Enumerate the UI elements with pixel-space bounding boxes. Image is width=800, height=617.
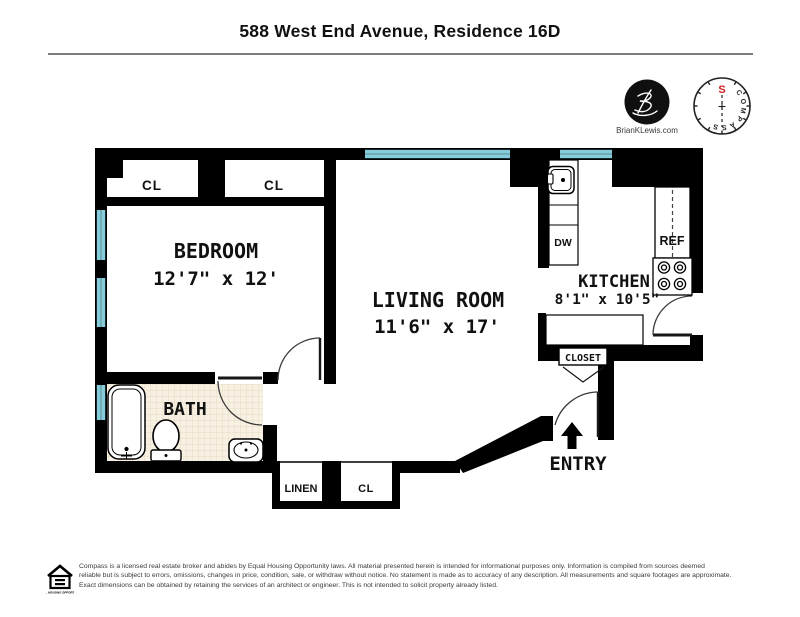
floorplan-sheet: 588 West End Avenue, Residence 16D Brian… xyxy=(0,0,800,617)
wall-cl-bottom xyxy=(333,501,400,509)
wall-corner-step xyxy=(95,160,123,178)
wall-left-2 xyxy=(95,260,107,278)
equal-housing-label: EQUAL HOUSING OPPORTUNITY xyxy=(46,591,74,595)
wall-diagonal-entry xyxy=(455,416,553,473)
disclaimer-line-2: reliable but is subject to errors, omiss… xyxy=(79,571,758,580)
bathtub-icon xyxy=(108,385,145,459)
window-kitchen xyxy=(560,148,612,160)
wall-peninsula-stub xyxy=(538,313,546,347)
wall-bottom-bath xyxy=(95,461,272,473)
kitchen-fixtures: DW REF xyxy=(546,160,692,345)
bedroom-dims: 12'7" x 12' xyxy=(153,268,279,290)
foyer-closet: CLOSET xyxy=(559,348,607,365)
kitchen-peninsula-counter xyxy=(546,315,643,345)
dishwasher-label: DW xyxy=(554,237,572,249)
wall-top-right-block xyxy=(612,148,703,187)
living-room-dims: 11'6" x 17' xyxy=(374,316,500,338)
logo-url-text: BrianKLewis.com xyxy=(616,126,678,135)
window-bedroom-2 xyxy=(95,278,107,327)
wall-closet-pier xyxy=(198,160,225,206)
disclaimer-line-1: Compass is a licensed real estate broker… xyxy=(79,562,758,571)
brian-k-lewis-logo: BrianKLewis.com xyxy=(616,80,678,136)
stove-icon xyxy=(653,258,692,295)
entry-arrow-icon xyxy=(561,422,583,449)
window-bedroom-1 xyxy=(95,210,107,260)
wall-linen-bottom xyxy=(272,501,330,509)
wall-bedroom-divider xyxy=(324,148,336,384)
compass-rose-icon: S C O M P A S S xyxy=(694,78,750,134)
bedroom-door xyxy=(278,338,320,380)
living-room-label: LIVING ROOM xyxy=(372,288,504,312)
linen-closet-label: LINEN xyxy=(285,483,318,495)
wall-kitchen-left xyxy=(538,148,549,268)
foyer-closet-label: CLOSET xyxy=(565,353,601,364)
kitchen-sink-icon xyxy=(548,167,575,194)
wall-door-pier xyxy=(263,372,278,384)
window-living-room xyxy=(365,148,510,160)
entry-label: ENTRY xyxy=(549,453,607,475)
wall-foyer-right xyxy=(598,361,614,440)
closet-top-right-label: CL xyxy=(264,178,284,193)
wall-bottom-living xyxy=(400,461,460,473)
foyer-closet-bifold-door xyxy=(563,367,604,382)
toilet-icon xyxy=(151,420,181,461)
disclaimer-line-3: Exact dimensions can be obtained by reta… xyxy=(79,581,758,590)
closet-bottom-label: CL xyxy=(358,483,374,495)
wall-bath-north xyxy=(95,372,215,384)
kitchen-dims: 8'1" x 10'5" xyxy=(555,292,660,308)
compass-north-label: S xyxy=(718,84,725,96)
kitchen-label: KITCHEN xyxy=(578,272,650,292)
window-bath xyxy=(95,385,107,420)
equal-housing-icon: EQUAL HOUSING OPPORTUNITY xyxy=(46,564,74,596)
bath-label: BATH xyxy=(163,399,206,420)
disclaimer-text: Compass is a licensed real estate broker… xyxy=(79,562,758,590)
wall-bath-right xyxy=(263,425,277,461)
floorplan-drawing: BrianKLewis.com S C xyxy=(0,0,800,617)
refrigerator-label: REF xyxy=(660,234,685,248)
bedroom-label: BEDROOM xyxy=(174,239,258,263)
footer: EQUAL HOUSING OPPORTUNITY Compass is a l… xyxy=(46,562,758,590)
closet-top-left-label: CL xyxy=(142,178,162,193)
